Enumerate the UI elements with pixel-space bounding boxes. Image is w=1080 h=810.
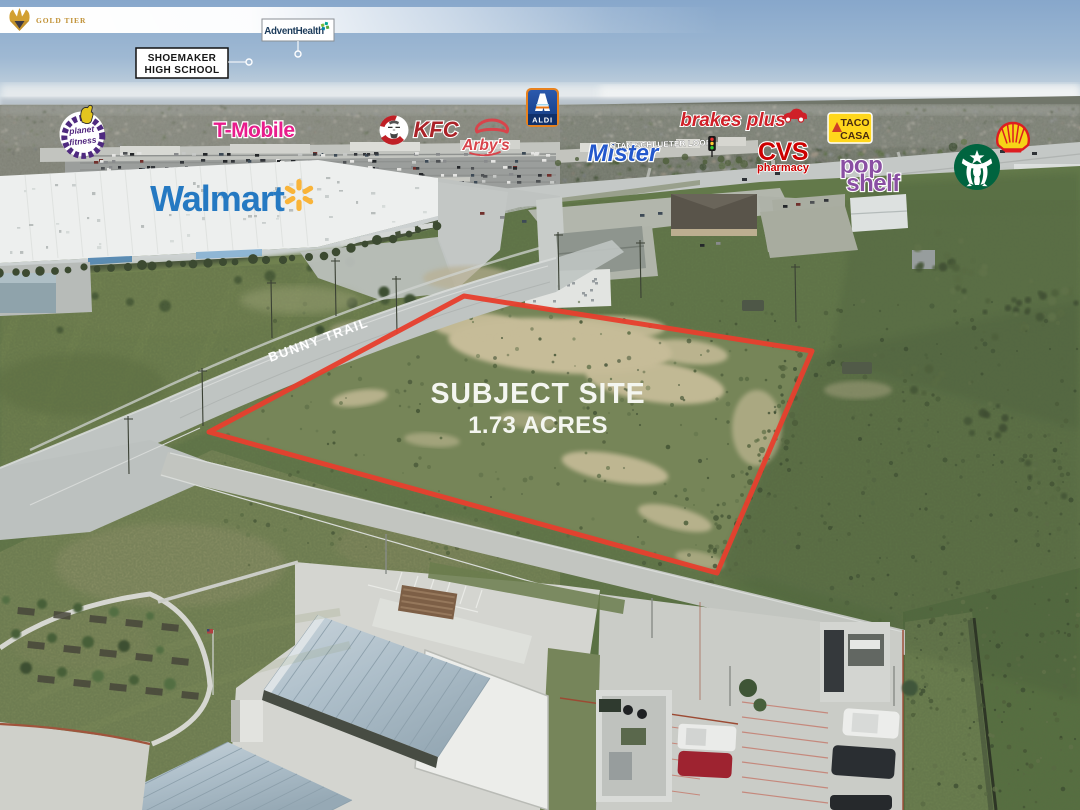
svg-text:SHOEMAKER: SHOEMAKER (148, 53, 217, 64)
svg-text:CASA: CASA (840, 130, 870, 142)
svg-text:T-Mobile: T-Mobile (213, 119, 294, 142)
svg-text:GOLD TIER: GOLD TIER (36, 16, 86, 25)
svg-text:ALDI: ALDI (532, 116, 553, 125)
svg-text:pharmacy: pharmacy (757, 162, 810, 174)
svg-text:KFC: KFC (413, 117, 459, 142)
svg-text:shelf: shelf (846, 170, 901, 197)
svg-text:brakes plus: brakes plus (680, 110, 786, 131)
svg-text:Walmart: Walmart (150, 178, 285, 219)
svg-text:Arby's: Arby's (461, 137, 510, 154)
svg-text:1.73 ACRES: 1.73 ACRES (468, 412, 608, 439)
svg-text:HIGH SCHOOL: HIGH SCHOOL (145, 65, 220, 76)
svg-text:SUBJECT SITE: SUBJECT SITE (430, 378, 645, 410)
svg-text:AdventHealth: AdventHealth (264, 26, 324, 37)
svg-text:TACO: TACO (841, 117, 870, 129)
